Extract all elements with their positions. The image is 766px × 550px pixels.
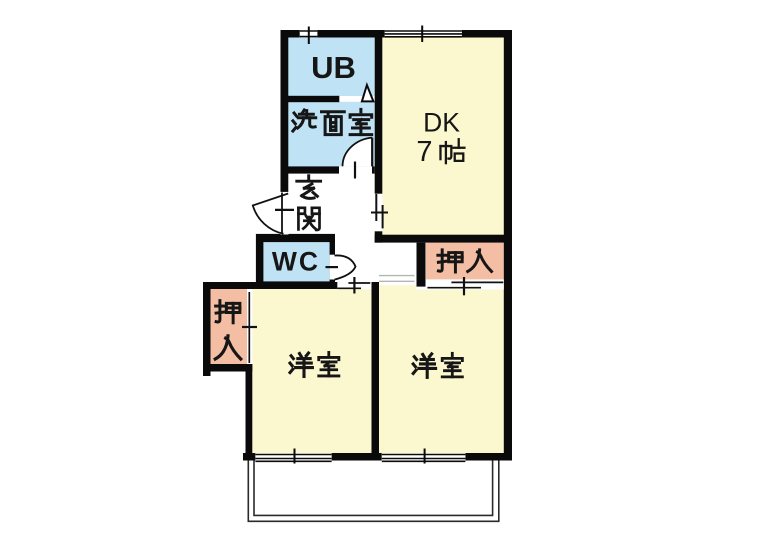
svg-text:DK: DK	[423, 107, 460, 137]
svg-text:7: 7	[416, 136, 432, 168]
svg-text:UB: UB	[311, 50, 356, 85]
svg-text:WC: WC	[272, 246, 320, 276]
